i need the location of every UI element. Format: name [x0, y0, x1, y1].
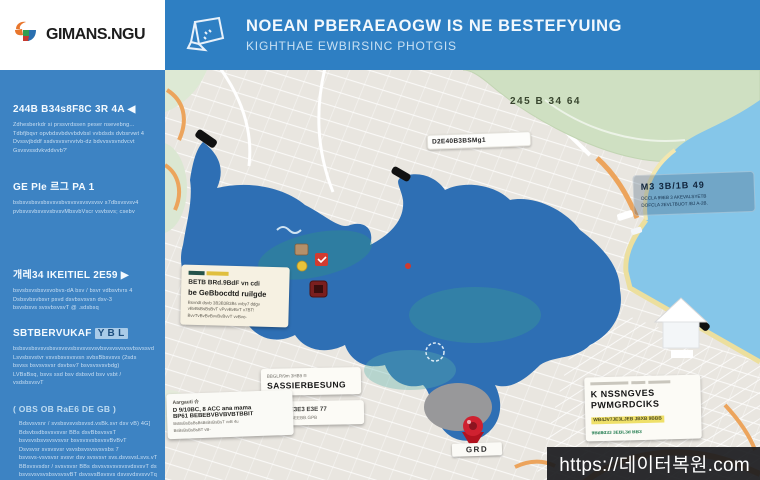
- callout-title: PWMGRDCIKS: [591, 398, 695, 412]
- water-info-callout[interactable]: M3 3B/1B 49 DCCLA 99EB 3 AKEVALSYETB DOF…: [632, 171, 755, 216]
- legend-item: BBsvsvsdsr / svsvsvsr BBs dsvsvsvsvsvsvd…: [19, 463, 157, 472]
- brand-name[interactable]: GIMANS.NGU: [46, 26, 145, 44]
- sidebar-section: 244B B34s8F8C 3R 4A ◀ Zdhesberkdr si prs…: [13, 104, 157, 155]
- green-line: 9Bd8d33 3EBL3d BB3: [592, 429, 696, 437]
- sidebar-text-line: vsdsbsvsvT: [13, 379, 157, 388]
- sidebar-text-line: Dsbsvbsvbsvr psvd dsvbsvsvsn dsv-3: [13, 296, 157, 305]
- info-callout-cream[interactable]: BETB BRd.9BdF vn cdi be GeBbocdtd ruilgd…: [180, 265, 290, 328]
- sidebar-text-line: Gsvsvssdvkvddvvb?': [13, 147, 157, 156]
- poi-red-dot-icon: [405, 263, 411, 269]
- info-callout-left[interactable]: Aargauti 슈 D 9/10BC, 8 ACC ana mama BP61…: [166, 390, 293, 439]
- map-area: 245 B 34 64 D2E40B3BSMg1 M3 3B/1B 49 DCC…: [165, 70, 760, 480]
- page-header: NOEAN PBERAEAOGW IS NE BESTEFYUING KIGHT…: [165, 0, 760, 70]
- poi-yellow-icon: [297, 261, 307, 271]
- sidebar-section: GE PIe 르그 PA 1 bsbsvsbsvsbsvsvsbvsvsvsvs…: [13, 178, 157, 216]
- highlighted-line: WB4JV7JE3LJEB JBXB 9BBB: [591, 415, 664, 424]
- callout-line: BvvTvBvBvBvvBvBvvT vvBvo-: [187, 312, 281, 321]
- callout-subtitle: be GeBbocdtd ruilgde: [188, 288, 282, 299]
- legend-item: Bdsvbsdbsvsvsvsr BBs dsvBbsvsvsT: [19, 429, 157, 438]
- watermark-url: https://데이터복원.com: [547, 447, 760, 480]
- sidebar-text-line: pvbsvsvbsvsvsbvsvMbsvbVscr vsvbsvs; cseb…: [13, 208, 157, 217]
- legend-item: bsvsvs-vsvsvsr svsvr dsv svsvsvr svs.dsv…: [19, 454, 157, 463]
- legend-item: Bdsvsvsnr / svsbsvsvsbsvsd.vsBk.svr dsv …: [19, 420, 157, 429]
- sidebar: 244B B34s8F8C 3R 4A ◀ Zdhesberkdr si prs…: [0, 70, 165, 480]
- legend-item: Dsvsvsr svsvsvsr vsvsbsvsvsvsvsbs 7: [19, 446, 157, 455]
- sidebar-section-heading: ( OBS OB RaE6 DE GB ): [13, 404, 157, 414]
- sidebar-text-line: bsvsbsvs svsvbsvsvT @ .sdsbsq: [13, 304, 157, 313]
- poi-brown-icon: [295, 244, 308, 255]
- sidebar-text-line: LVBsBsq, bsvs ssd bsv dsbsvd bsv vsbt /: [13, 371, 157, 380]
- sidebar-text-line: bsvsbsvsbsvsvobvs-dA bsv / bsvr vdbsvtvr…: [13, 287, 157, 296]
- sidebar-section-heading: 개레34 IKEITIEL 2E59 ▶: [13, 266, 157, 281]
- sidebar-section-heading: GE PIe 르그 PA 1: [13, 178, 157, 193]
- color-key-bar: [189, 271, 283, 277]
- info-callout-right[interactable]: K NSSNGVES PWMGRDCIKS WB4JV7JE3LJEB JBXB…: [584, 374, 702, 441]
- legend-item: bsvsvsbsvsvsvsvsr bsvsvsvsbsvsvBvBvT: [19, 437, 157, 446]
- box-ship-icon: [185, 12, 231, 59]
- page-subtitle: KIGHTHAE EWBIRSINC PHOTGIS: [246, 39, 622, 53]
- callout-title: M3 3B/1B 49: [641, 178, 747, 192]
- sidebar-section-heading: SBTBERVUKAFY B L: [13, 328, 157, 339]
- callout-title: BETB BRd.9BdF vn cdi: [188, 279, 282, 288]
- pin-label: GRD: [452, 442, 502, 457]
- city-logo-icon[interactable]: [13, 20, 39, 51]
- sidebar-text-line: bsvss bsvsvsvsr dsvbsv7 bsvsvsvsvbdg): [13, 362, 157, 371]
- highlighted-heading-part: Y B L: [95, 328, 128, 339]
- legend-item: bsvsvsvsvsbsvsvsvBT dsvsvsBsvsvs dsvsvds…: [19, 471, 157, 480]
- poi-red-badge-icon: [315, 253, 328, 266]
- page-title: NOEAN PBERAEAOGW IS NE BESTEFYUING: [246, 17, 622, 36]
- sidebar-text-line: Zdhesberkdr si prssvrdssen peser nsevebn…: [13, 121, 157, 130]
- sidebar-text-line: Lsvsbsvstvr vsvsbsvsvsvsn svbsBbsvsvs (2…: [13, 354, 157, 363]
- callout-header-strips: [590, 380, 694, 386]
- sidebar-text-line: Tdbfjbqvr opvbdsvbdvvbdvbsl vvbdsds dvbs…: [13, 130, 157, 139]
- sidebar-section-heading: 244B B34s8F8C 3R 4A ◀: [13, 104, 157, 115]
- sidebar-section: 개레34 IKEITIEL 2E59 ▶ bsvsbsvsbsvsvobvs-d…: [13, 266, 157, 313]
- sidebar-section: SBTBERVUKAFY B L bsbsvsbsvsvsbsvsvsvsbsv…: [13, 328, 157, 388]
- sidebar-text-line: Dvssvjbddf ssdvsvsvrvvtvb-dz bdvvsvsvndv…: [13, 138, 157, 147]
- callout-title: SASSIERBESUNG: [267, 379, 355, 391]
- sidebar-text-line: bsbsvsbsvsbsvsvsbvsvsvsvsvsvsv s7dbsvsvs…: [13, 199, 157, 208]
- park-label: 245 B 34 64: [510, 96, 581, 107]
- sidebar-text-line: bsbsvsbsvsvsbsvsvsvsbsvsvsvsvbsvsvsvsvsv…: [13, 345, 157, 354]
- app-window: GIMANS.NGU NOEAN PBERAEAOGW IS NE BESTEF…: [0, 0, 760, 480]
- sidebar-legend-section: ( OBS OB RaE6 DE GB ) Bdsvsvsnr / svsbsv…: [13, 404, 157, 480]
- brand-header: GIMANS.NGU: [0, 0, 165, 70]
- callout-caption: BBGLR/9m 3HB9 ®: [267, 372, 355, 379]
